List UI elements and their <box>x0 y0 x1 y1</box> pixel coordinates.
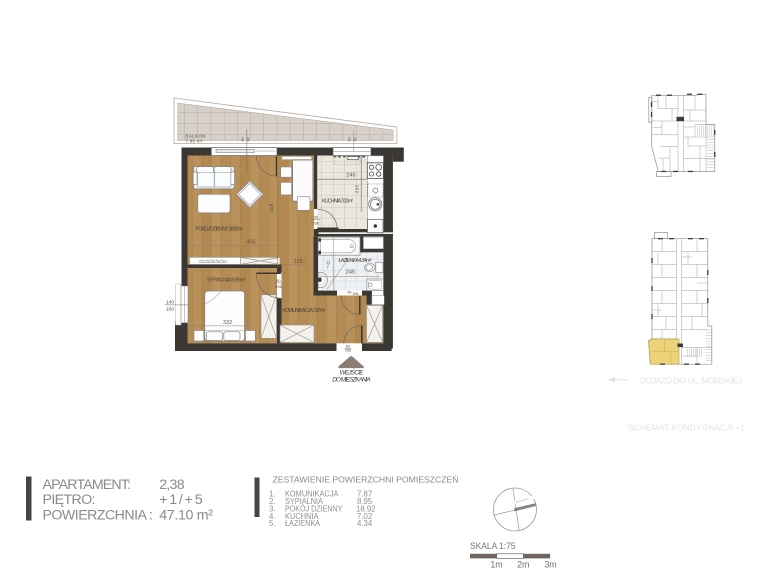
svg-text:408: 408 <box>269 203 274 213</box>
svg-text:90: 90 <box>348 138 352 142</box>
svg-text:140: 140 <box>166 299 174 305</box>
svg-text:3m: 3m <box>544 560 556 570</box>
svg-text:1m: 1m <box>490 560 502 570</box>
svg-text:205: 205 <box>354 184 359 193</box>
svg-text:ŁAZIENKA: ŁAZIENKA <box>285 519 321 528</box>
svg-text:7.90 m²: 7.90 m² <box>185 138 202 143</box>
svg-text:DOJAZD DO UL. MORSKIEJ: DOJAZD DO UL. MORSKIEJ <box>640 376 742 386</box>
svg-text:+1/+5: +1/+5 <box>159 492 203 508</box>
svg-text:POKÓJ DZIENNY 18.92m²: POKÓJ DZIENNY 18.92m² <box>195 225 243 232</box>
svg-text:206: 206 <box>275 284 282 289</box>
svg-text:PIĘTRO:: PIĘTRO: <box>43 492 96 508</box>
svg-text:90: 90 <box>348 290 352 294</box>
svg-text:2m: 2m <box>517 560 529 570</box>
svg-text:SKALA 1:75: SKALA 1:75 <box>470 541 516 551</box>
svg-text:SCHEMAT KONDYGNACJI +1: SCHEMAT KONDYGNACJI +1 <box>628 423 745 433</box>
svg-text:POWIERZCHNIA :: POWIERZCHNIA : <box>43 507 154 523</box>
svg-text:WEJŚCIE: WEJŚCIE <box>340 367 365 376</box>
svg-text:2,38: 2,38 <box>159 477 185 493</box>
svg-text:455: 455 <box>247 240 256 246</box>
svg-text:90: 90 <box>241 138 245 142</box>
svg-text:APARTAMENT:: APARTAMENT: <box>43 477 132 493</box>
svg-text:5.: 5. <box>269 519 276 528</box>
svg-text:ŁAZIENKA 4.34m²: ŁAZIENKA 4.34m² <box>339 258 372 264</box>
svg-text:PÓŁNOC: PÓŁNOC <box>515 496 529 504</box>
svg-text:47.10 m²: 47.10 m² <box>159 507 213 523</box>
svg-text:206: 206 <box>345 349 351 353</box>
svg-text:90: 90 <box>314 214 319 219</box>
svg-text:206: 206 <box>353 292 359 296</box>
svg-text:90: 90 <box>246 138 250 142</box>
svg-text:245: 245 <box>346 173 355 179</box>
svg-text:206: 206 <box>312 221 319 226</box>
svg-text:90: 90 <box>276 278 281 283</box>
svg-text:245: 245 <box>346 270 355 276</box>
svg-text:KOMUNIKACJA 7.87m²: KOMUNIKACJA 7.87m² <box>282 308 325 314</box>
svg-text:100: 100 <box>166 307 174 313</box>
svg-text:4.34: 4.34 <box>357 519 373 528</box>
svg-text:SYPIALNIA 8.95m²: SYPIALNIA 8.95m² <box>207 277 246 283</box>
svg-text:90: 90 <box>353 138 357 142</box>
svg-text:KUCHNIA 7.02m²: KUCHNIA 7.02m² <box>322 198 353 204</box>
svg-text:ZESTAWIENIE POWIERZCHNI POMIE: ZESTAWIENIE POWIERZCHNI POMIESZCZEŃ <box>273 475 459 485</box>
svg-text:332: 332 <box>223 320 232 326</box>
svg-text:DO MIESZKANIA: DO MIESZKANIA <box>332 377 371 384</box>
